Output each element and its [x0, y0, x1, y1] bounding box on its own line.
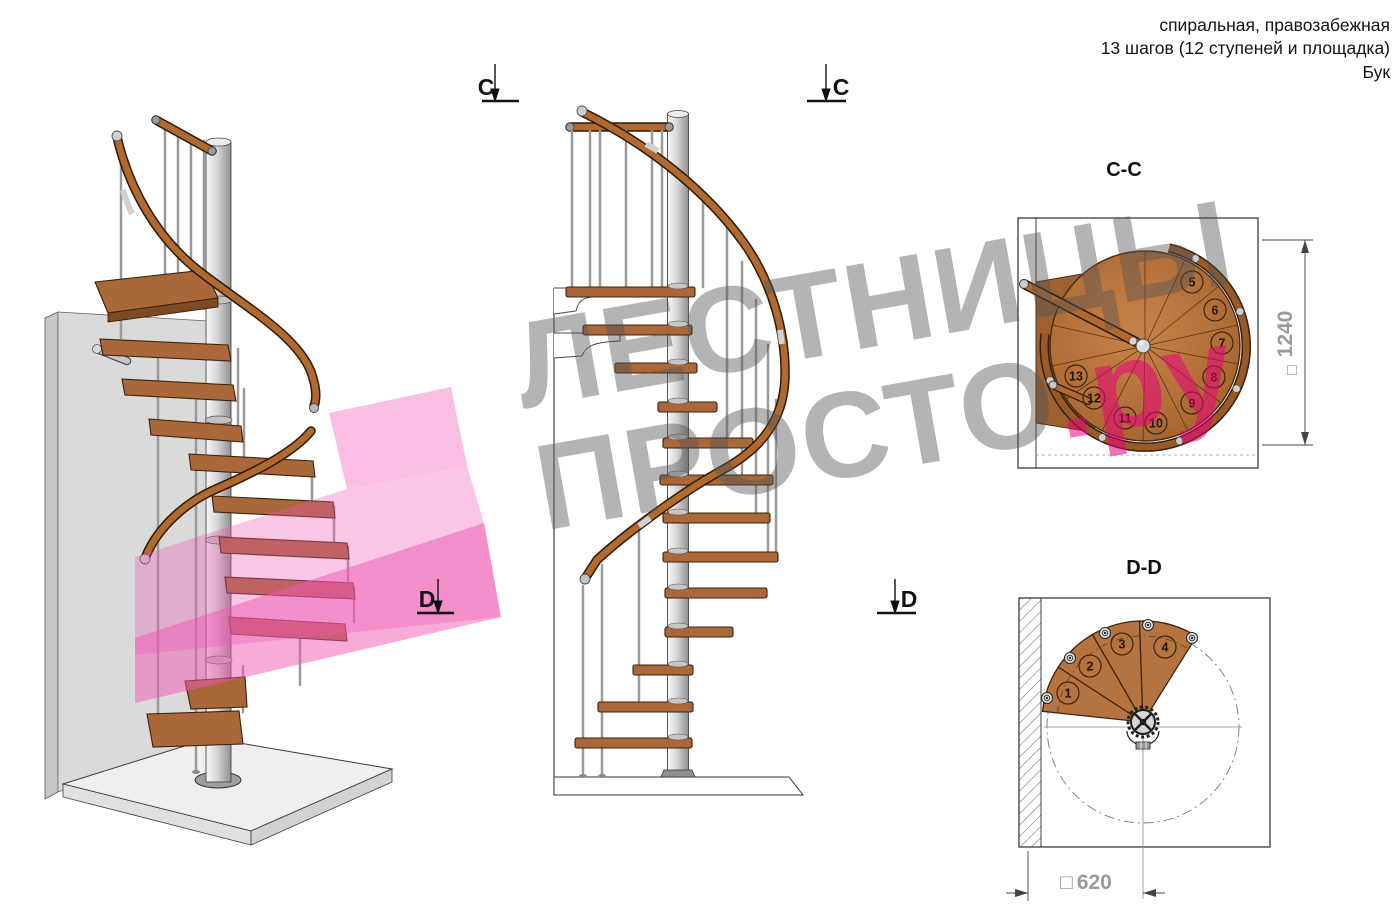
elevation-view — [554, 106, 803, 795]
cc-dimension-value: 1240 — [1274, 311, 1297, 358]
title-annotation: спиральная, правозабежная 13 шагов (12 с… — [1101, 14, 1390, 84]
section-marker-d-right: D — [901, 586, 918, 612]
guardrail-cap — [208, 147, 216, 155]
dimension-arrow-icon — [1301, 240, 1309, 253]
cc-section-view: C-C 5 6 7 8 — [1018, 159, 1313, 468]
guardrail-cap — [566, 123, 574, 131]
cc-view-title: C-C — [1106, 159, 1142, 181]
floor-slab-notch — [554, 333, 620, 358]
material-line: Бук — [1101, 61, 1390, 84]
dimension-arrow-icon — [1015, 889, 1028, 897]
guardrail-cap — [665, 123, 673, 131]
section-marker-c-left: C — [478, 74, 495, 100]
cc-pole-top-ball — [1136, 339, 1150, 353]
staircase-drawing: C C D D C-C — [0, 0, 1400, 922]
baluster-foot — [579, 774, 587, 778]
cc-step-label: 8 — [1211, 371, 1218, 385]
rail-end-cap — [580, 574, 590, 584]
rail-end-cap — [112, 131, 122, 141]
guardrail-cap — [152, 116, 160, 124]
cc-step-label: 11 — [1118, 412, 1131, 426]
dd-step-label: 4 — [1162, 641, 1169, 655]
dimension-arrow-icon — [1301, 432, 1309, 445]
rail-connector-sleeve — [780, 330, 782, 344]
cc-step-label: 7 — [1219, 337, 1226, 351]
pole-base-flange — [661, 770, 695, 777]
cc-step-label: 5 — [1189, 276, 1196, 290]
blueprint-page: C C D D C-C — [0, 0, 1400, 922]
rail-connector-sleeve — [123, 190, 132, 214]
rail-end-cap — [577, 106, 587, 116]
dd-dimension-value: □620 — [1060, 871, 1112, 894]
dd-step-label: 1 — [1065, 687, 1072, 701]
dd-step-label: 2 — [1087, 660, 1094, 674]
cc-step-label: 10 — [1149, 417, 1163, 431]
dimension-arrow-icon — [1143, 889, 1156, 897]
section-marker-c-right: C — [833, 74, 850, 100]
cc-dimension: 1240 □ — [1262, 240, 1313, 445]
section-marker-d-left: D — [419, 586, 436, 612]
cc-step-label: 13 — [1069, 370, 1083, 384]
ball-highlight — [1139, 341, 1144, 346]
square-section-symbol: □ — [1287, 362, 1297, 379]
rail-end-cap — [310, 404, 319, 413]
dd-wall-hatch — [1019, 598, 1041, 847]
cc-step-label: 6 — [1212, 304, 1219, 318]
baluster-foot — [598, 774, 606, 778]
dd-view-title: D-D — [1126, 557, 1162, 579]
wall-side-face — [45, 312, 58, 799]
dd-section-view: D-D — [1006, 557, 1270, 901]
rail-end-cap — [1049, 381, 1057, 389]
rail-joint — [1129, 337, 1137, 345]
rail-end-cap — [1020, 280, 1029, 289]
dd-step-label: 3 — [1119, 638, 1126, 652]
dd-dimension: □620 — [1006, 851, 1165, 901]
rail-end-cap — [93, 345, 102, 354]
cc-step-label: 12 — [1087, 392, 1101, 406]
pole-top-cap — [668, 111, 689, 118]
floor-band — [554, 777, 803, 795]
cc-step-label: 9 — [1189, 397, 1196, 411]
steps-count-line: 13 шагов (12 ступеней и площадка) — [1101, 37, 1390, 60]
baluster-foot — [192, 770, 200, 774]
square-section-symbol: □ — [1060, 871, 1073, 894]
stair-type-line: спиральная, правозабежная — [1101, 14, 1390, 37]
left-3d-staircase-view — [45, 116, 501, 845]
